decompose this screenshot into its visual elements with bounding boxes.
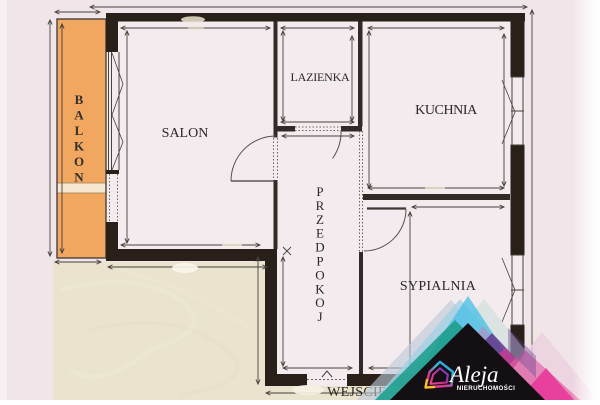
svg-text:SALON: SALON (162, 126, 209, 141)
svg-text:O: O (315, 295, 324, 310)
svg-text:E: E (316, 226, 324, 241)
svg-text:J: J (317, 309, 322, 324)
svg-text:SYPIALNIA: SYPIALNIA (400, 279, 477, 294)
svg-text:Z: Z (316, 212, 324, 227)
svg-text:D: D (315, 240, 324, 255)
svg-text:Aleja: Aleja (448, 362, 499, 387)
svg-text:NIERUCHOMOŚCI: NIERUCHOMOŚCI (457, 385, 515, 392)
svg-text:K: K (315, 281, 325, 296)
svg-text:LAZIENKA: LAZIENKA (290, 70, 350, 84)
svg-text:L: L (75, 123, 84, 138)
svg-text:B: B (75, 92, 84, 107)
svg-text:O: O (74, 154, 84, 169)
svg-text:A: A (74, 108, 84, 123)
svg-text:K: K (74, 139, 85, 154)
svg-text:KUCHNIA: KUCHNIA (415, 103, 478, 118)
svg-text:N: N (74, 170, 84, 185)
svg-text:P: P (316, 184, 323, 199)
svg-text:O: O (315, 267, 324, 282)
svg-text:P: P (316, 254, 323, 269)
svg-text:R: R (316, 198, 325, 213)
